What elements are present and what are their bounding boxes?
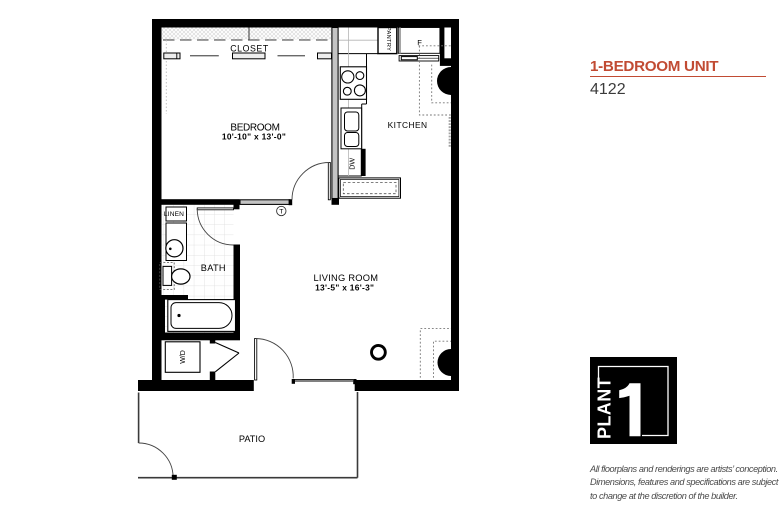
svg-text:LINEN: LINEN [164,211,184,218]
svg-text:DW: DW [347,158,356,170]
svg-text:PANTRY: PANTRY [385,27,391,51]
svg-text:BATH: BATH [201,263,226,273]
svg-text:PLANT: PLANT [595,377,615,439]
svg-text:W/D: W/D [180,350,187,364]
svg-text:KITCHEN: KITCHEN [388,120,428,130]
svg-text:PATIO: PATIO [239,434,265,444]
svg-text:10'-10" x 13'-0": 10'-10" x 13'-0" [222,132,286,142]
svg-text:T: T [279,209,283,216]
svg-text:13'-5" x 16'-3": 13'-5" x 16'-3" [315,282,374,292]
svg-text:CLOSET: CLOSET [230,43,269,53]
